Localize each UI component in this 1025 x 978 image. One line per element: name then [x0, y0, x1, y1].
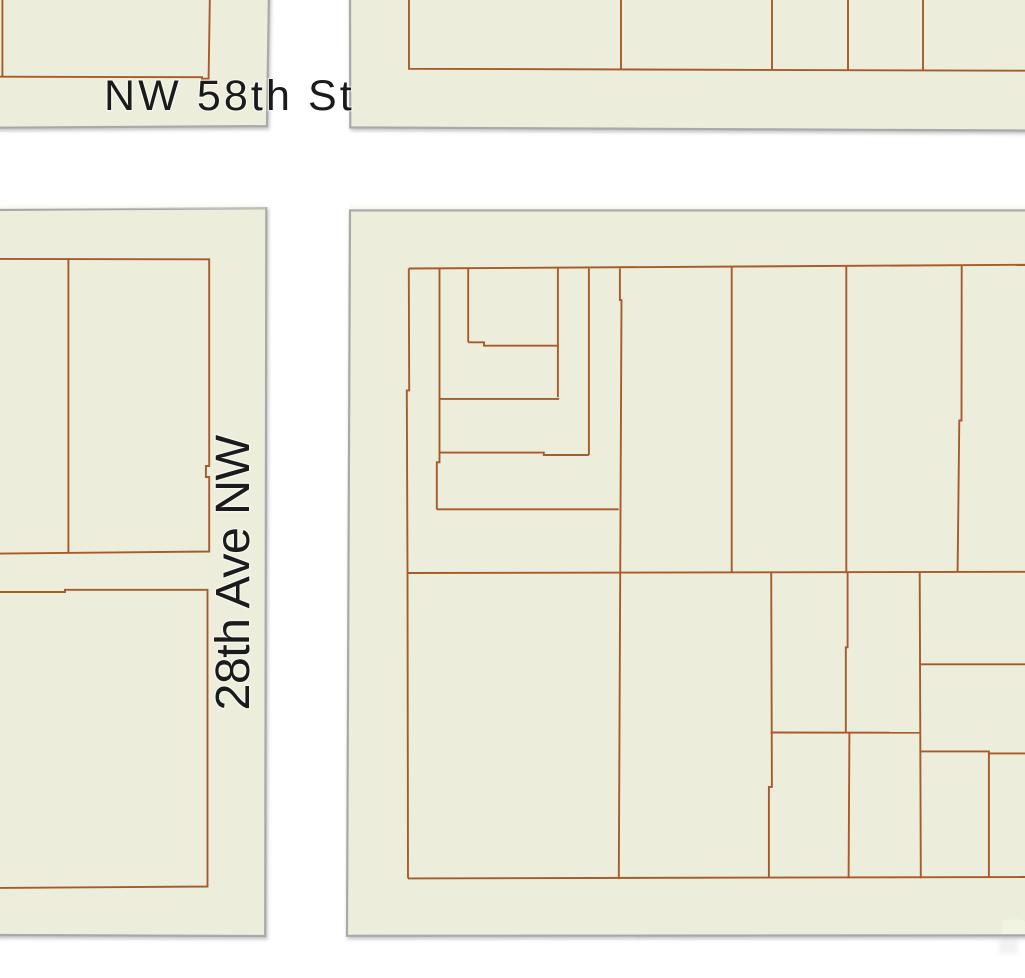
svg-text:28th Ave NW: 28th Ave NW [206, 435, 260, 711]
svg-text:NW 58th St: NW 58th St [104, 72, 355, 120]
